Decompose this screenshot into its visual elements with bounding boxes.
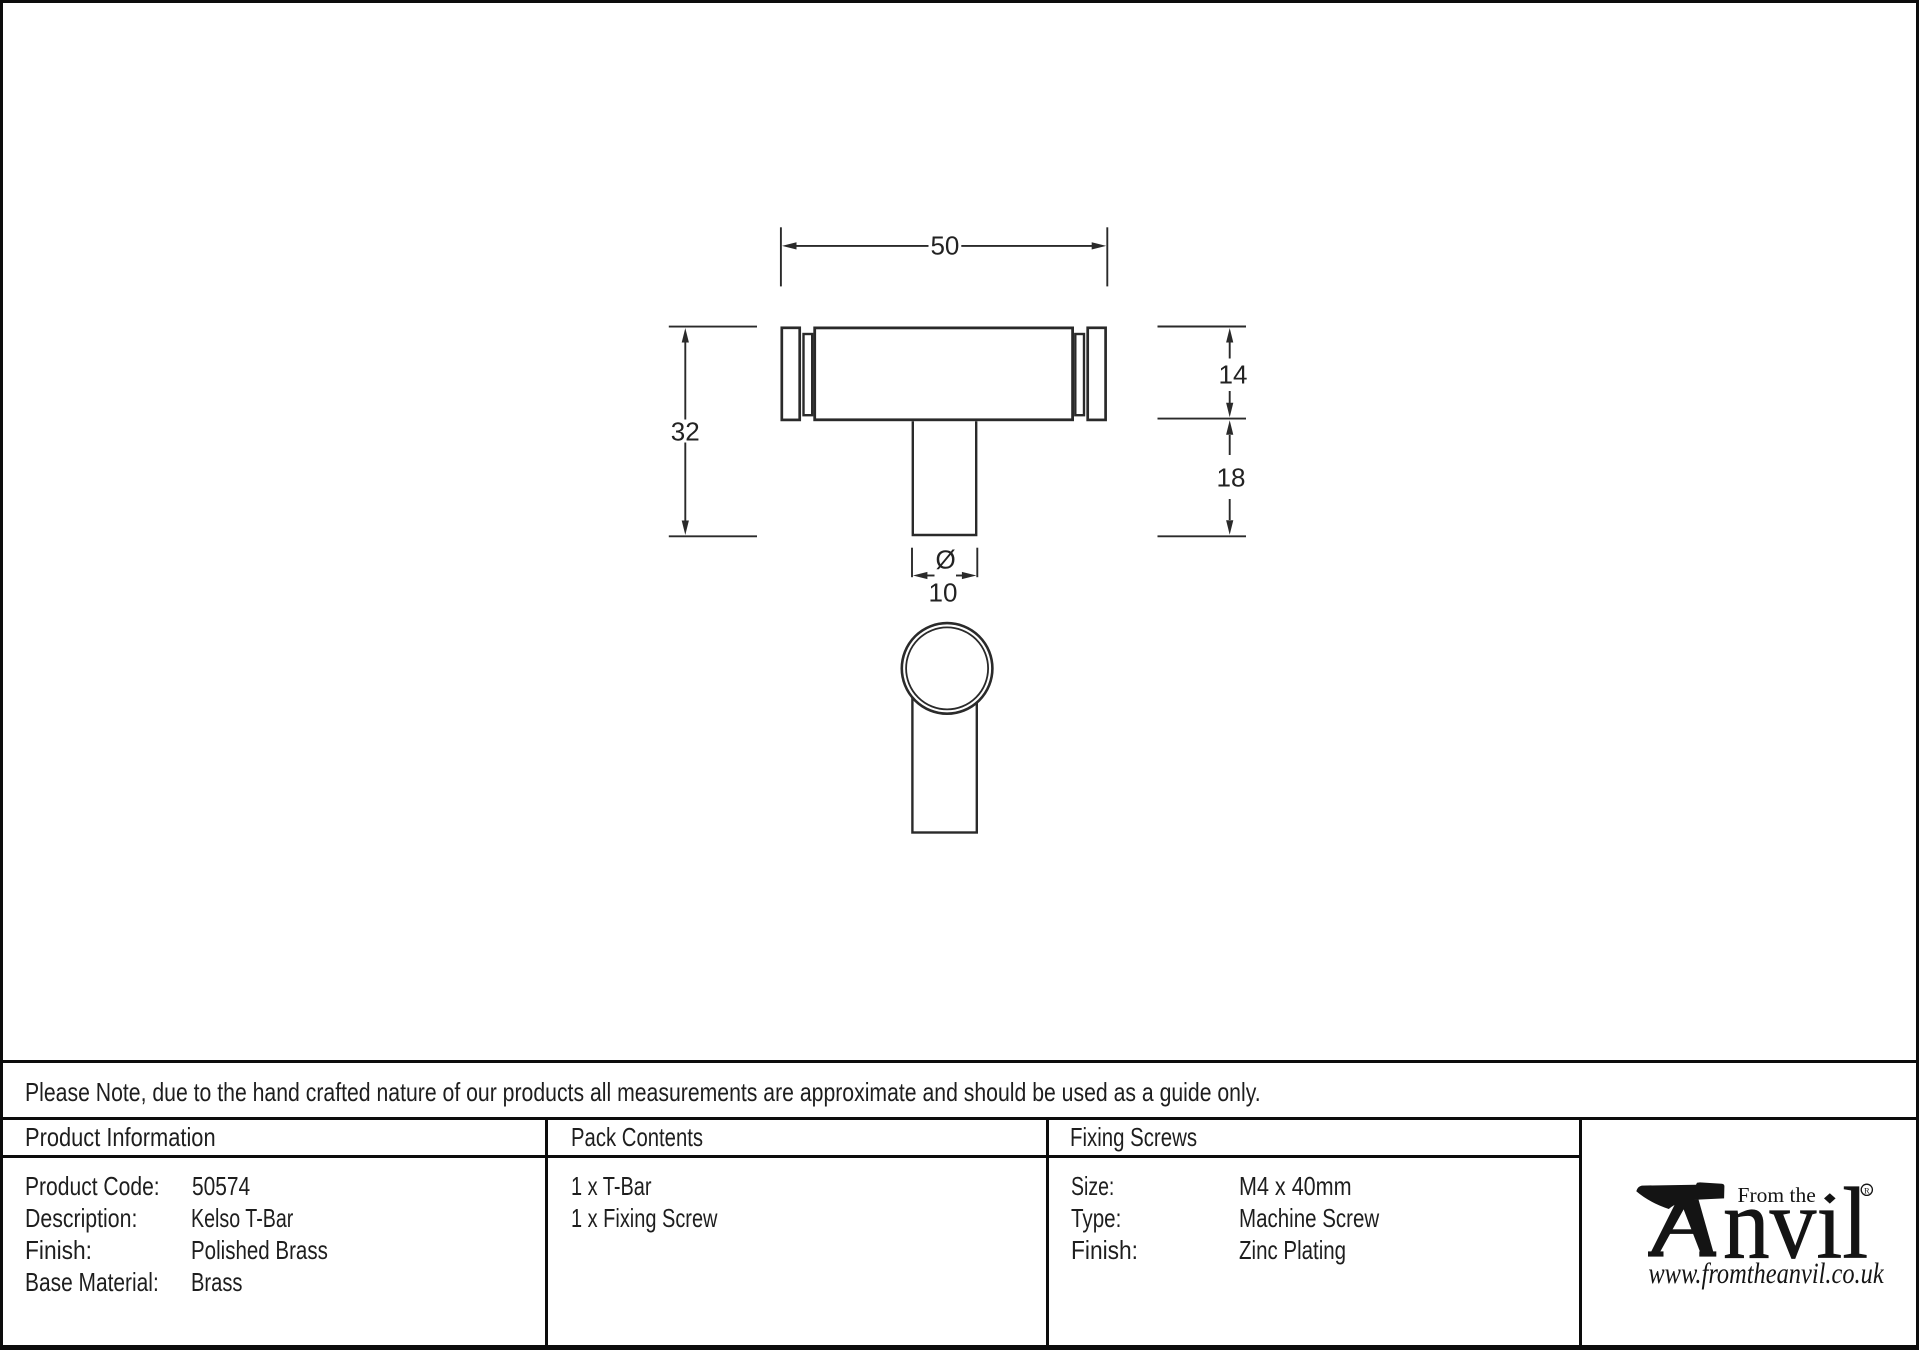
- svg-text:10: 10: [929, 577, 958, 607]
- svg-text:50: 50: [930, 231, 959, 261]
- svg-text:32: 32: [671, 417, 700, 447]
- svg-text:R: R: [1864, 1186, 1870, 1196]
- svg-text:Ø: Ø: [935, 544, 955, 574]
- svg-text:www.fromtheanvil.co.uk: www.fromtheanvil.co.uk: [1648, 1257, 1884, 1290]
- svg-text:14: 14: [1219, 359, 1248, 389]
- svg-text:18: 18: [1217, 463, 1246, 493]
